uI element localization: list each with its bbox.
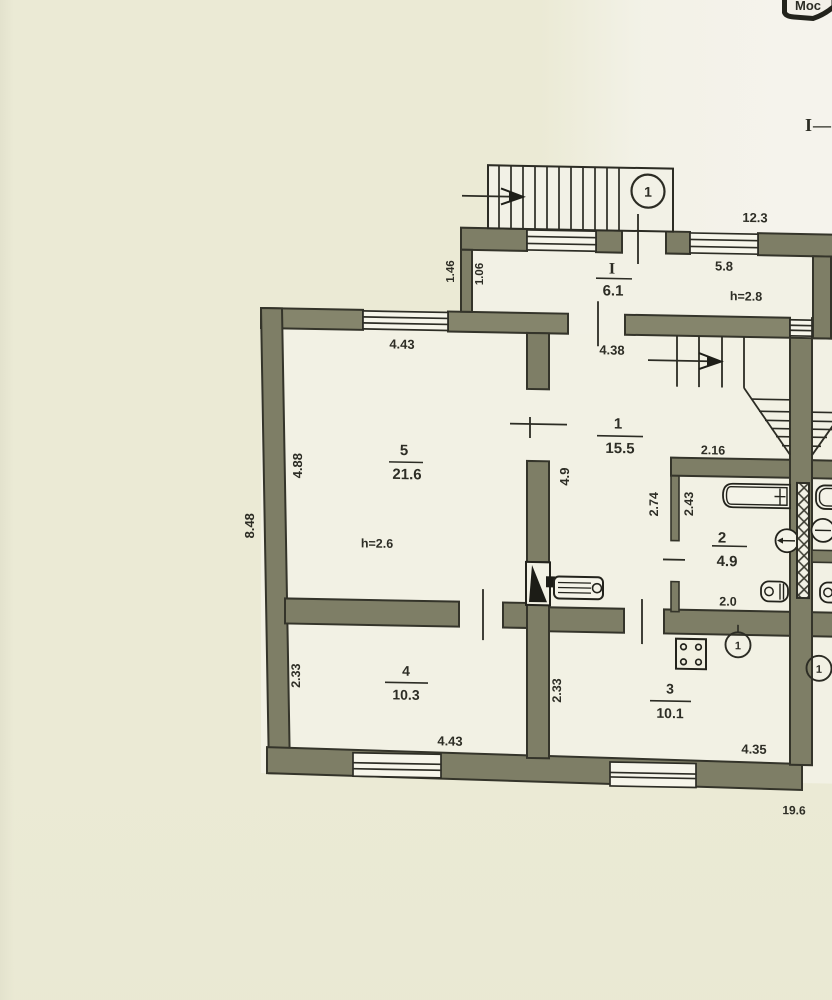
svg-text:12.3: 12.3	[742, 210, 767, 225]
svg-text:2.33: 2.33	[289, 663, 303, 688]
svg-text:3: 3	[666, 680, 674, 696]
svg-text:2: 2	[718, 529, 726, 546]
svg-text:2.74: 2.74	[647, 492, 661, 517]
svg-text:5.8: 5.8	[715, 258, 733, 273]
svg-text:8.48: 8.48	[242, 513, 257, 539]
svg-text:I—I: I—I	[805, 115, 832, 135]
svg-text:4.43: 4.43	[389, 336, 414, 351]
svg-text:2.16: 2.16	[701, 443, 725, 457]
svg-text:4.38: 4.38	[599, 342, 624, 357]
svg-text:2.33: 2.33	[550, 678, 564, 703]
svg-text:4.43: 4.43	[437, 733, 462, 748]
svg-text:1: 1	[735, 640, 741, 652]
svg-text:Moc: Moc	[795, 0, 821, 13]
svg-text:4: 4	[402, 663, 410, 679]
svg-text:21.6: 21.6	[392, 466, 421, 484]
svg-text:4.35: 4.35	[741, 741, 766, 756]
svg-text:2.0: 2.0	[719, 594, 736, 608]
svg-text:1.06: 1.06	[474, 263, 486, 286]
svg-text:19.6: 19.6	[782, 803, 806, 817]
svg-text:5: 5	[400, 442, 408, 459]
svg-text:6.1: 6.1	[603, 282, 624, 299]
svg-text:1: 1	[816, 664, 822, 676]
svg-text:h=2.6: h=2.6	[361, 536, 393, 551]
svg-text:4.9: 4.9	[717, 553, 738, 570]
svg-text:2.43: 2.43	[682, 492, 696, 517]
svg-text:I: I	[609, 260, 615, 277]
svg-text:h=2.8: h=2.8	[730, 289, 762, 304]
svg-text:15.5: 15.5	[605, 440, 634, 458]
svg-text:4.88: 4.88	[290, 453, 305, 479]
svg-text:1.46: 1.46	[445, 260, 457, 283]
svg-text:1: 1	[644, 184, 652, 200]
svg-text:1: 1	[614, 416, 622, 433]
svg-text:10.3: 10.3	[392, 686, 419, 703]
svg-text:4.9: 4.9	[557, 467, 572, 485]
svg-text:10.1: 10.1	[656, 705, 683, 722]
